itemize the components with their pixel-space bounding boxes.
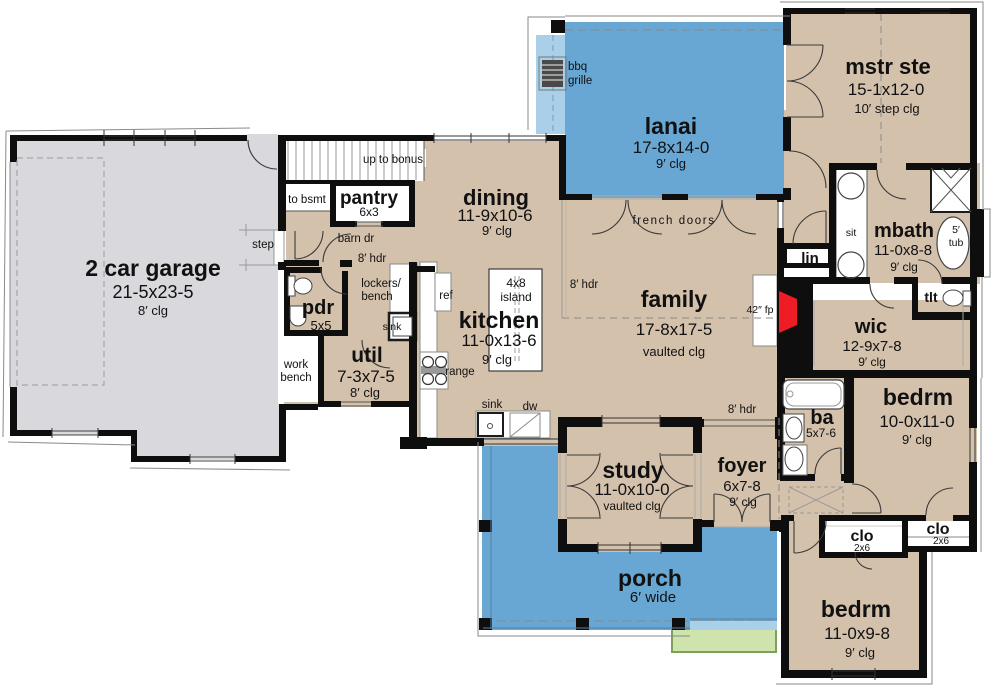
svg-text:tub: tub (949, 237, 964, 249)
svg-text:8′ hdr: 8′ hdr (728, 404, 757, 416)
svg-text:bbq: bbq (568, 61, 587, 73)
svg-text:8′ hdr: 8′ hdr (570, 279, 599, 291)
svg-text:2x6: 2x6 (933, 536, 950, 547)
svg-text:8′ hdr: 8′ hdr (358, 253, 387, 265)
svg-text:11-0x9-8: 11-0x9-8 (824, 624, 890, 643)
svg-text:to bsmt: to bsmt (288, 194, 327, 206)
svg-text:11-0x10-0: 11-0x10-0 (594, 480, 669, 499)
svg-text:7-3x7-5: 7-3x7-5 (337, 367, 395, 386)
svg-text:21-5x23-5: 21-5x23-5 (112, 282, 193, 302)
svg-text:wic: wic (854, 316, 887, 338)
svg-text:9′ clg: 9′ clg (845, 645, 875, 660)
svg-text:6x7-8: 6x7-8 (723, 478, 761, 495)
svg-text:2 car garage: 2 car garage (85, 255, 221, 281)
svg-text:4x8: 4x8 (506, 276, 526, 290)
svg-text:9′ clg: 9′ clg (656, 156, 686, 171)
svg-text:9′ clg: 9′ clg (729, 495, 757, 509)
svg-text:6′ wide: 6′ wide (630, 589, 676, 606)
svg-text:range: range (445, 366, 474, 378)
svg-text:grille: grille (568, 75, 592, 87)
svg-text:mstr ste: mstr ste (845, 54, 931, 79)
svg-text:barn dr: barn dr (338, 233, 375, 245)
svg-text:10′ step clg: 10′ step clg (854, 101, 919, 116)
svg-text:kitchen: kitchen (459, 307, 540, 333)
svg-text:9′ clg: 9′ clg (902, 432, 932, 447)
svg-text:17-8x17-5: 17-8x17-5 (636, 320, 713, 339)
svg-text:9′ clg: 9′ clg (858, 355, 886, 369)
svg-text:porch: porch (618, 565, 682, 591)
svg-text:17-8x14-0: 17-8x14-0 (633, 138, 710, 157)
svg-text:mbath: mbath (874, 220, 934, 242)
svg-text:8′ clg: 8′ clg (138, 303, 168, 318)
svg-text:lanai: lanai (645, 113, 697, 139)
svg-text:lockers/: lockers/ (361, 278, 401, 290)
svg-text:bench: bench (280, 372, 311, 384)
svg-text:11-0x13-6: 11-0x13-6 (461, 331, 536, 350)
svg-text:15-1x12-0: 15-1x12-0 (848, 80, 925, 99)
svg-text:9′ clg: 9′ clg (482, 223, 512, 238)
svg-text:5x5: 5x5 (311, 318, 332, 333)
svg-text:ref: ref (439, 290, 453, 302)
svg-text:10-0x11-0: 10-0x11-0 (879, 412, 954, 431)
svg-text:9′ clg: 9′ clg (482, 352, 512, 367)
svg-text:french doors: french doors (632, 215, 715, 227)
svg-text:foyer: foyer (718, 455, 767, 477)
svg-text:11-0x8-8: 11-0x8-8 (874, 242, 932, 259)
svg-text:2x6: 2x6 (854, 543, 871, 554)
svg-text:sit: sit (846, 227, 857, 239)
svg-text:step: step (252, 239, 274, 251)
svg-text:sink: sink (383, 321, 402, 333)
svg-text:dw: dw (523, 401, 538, 413)
svg-text:bedrm: bedrm (821, 596, 891, 622)
svg-text:family: family (641, 286, 708, 312)
svg-text:bench: bench (361, 291, 392, 303)
svg-text:5′: 5′ (952, 224, 960, 236)
svg-text:sink: sink (482, 399, 503, 411)
svg-text:42″ fp: 42″ fp (746, 304, 773, 316)
svg-text:pdr: pdr (302, 297, 334, 319)
svg-text:tlt: tlt (924, 289, 938, 305)
svg-text:lin: lin (801, 250, 819, 267)
svg-text:6x3: 6x3 (359, 205, 379, 219)
svg-text:9′ clg: 9′ clg (890, 260, 918, 274)
svg-text:bedrm: bedrm (883, 384, 953, 410)
svg-text:island: island (500, 290, 531, 304)
svg-text:vaulted clg: vaulted clg (603, 499, 660, 513)
svg-text:8′ clg: 8′ clg (350, 385, 380, 400)
svg-text:5x7-6: 5x7-6 (806, 426, 836, 440)
svg-text:up to bonus: up to bonus (363, 154, 423, 166)
svg-text:12-9x7-8: 12-9x7-8 (842, 338, 901, 355)
svg-text:util: util (351, 344, 383, 367)
svg-text:work: work (283, 359, 309, 371)
svg-text:vaulted clg: vaulted clg (643, 344, 705, 359)
